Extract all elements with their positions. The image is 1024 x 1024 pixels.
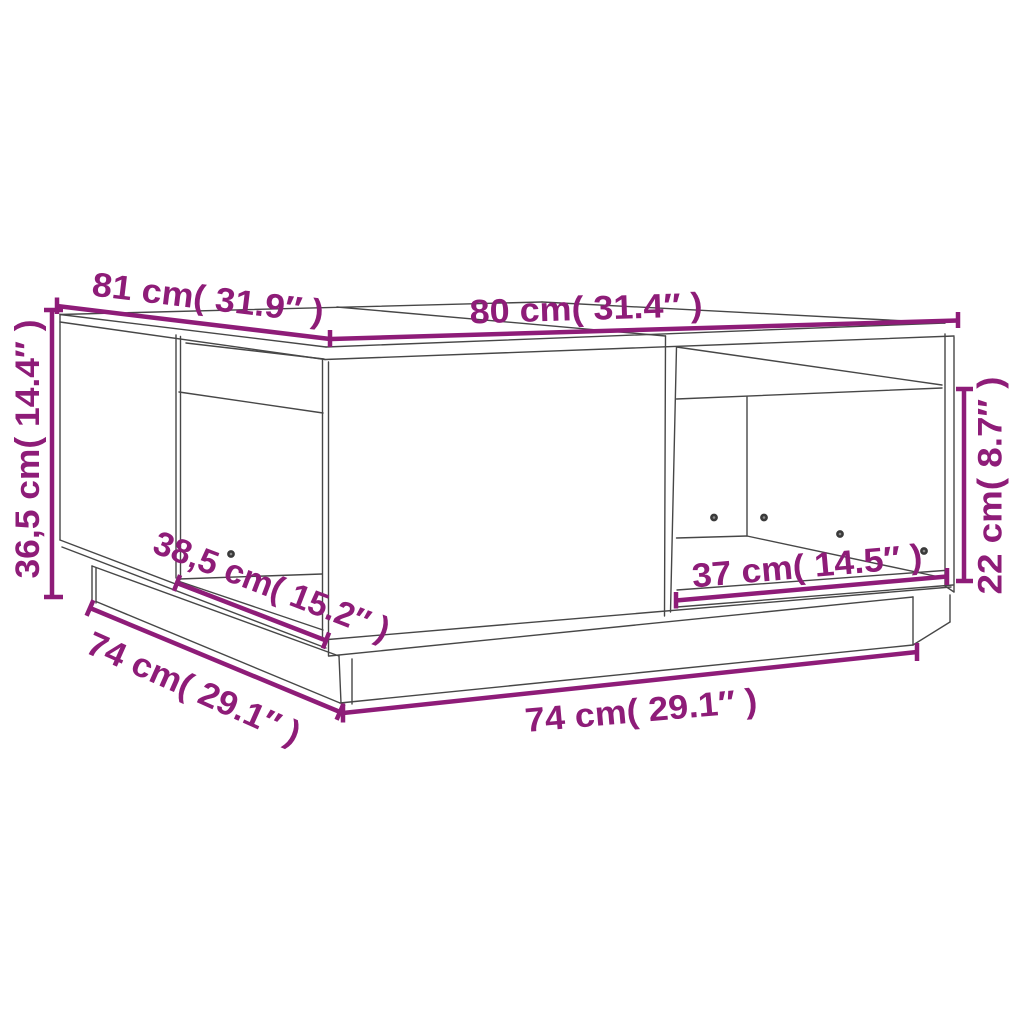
svg-text:22 cm( 8.7″ ): 22 cm( 8.7″ ) (972, 377, 1010, 595)
svg-text:80 cm( 31.4″ ): 80 cm( 31.4″ ) (469, 286, 703, 331)
svg-text:36,5 cm( 14.4″ ): 36,5 cm( 14.4″ ) (9, 320, 47, 579)
